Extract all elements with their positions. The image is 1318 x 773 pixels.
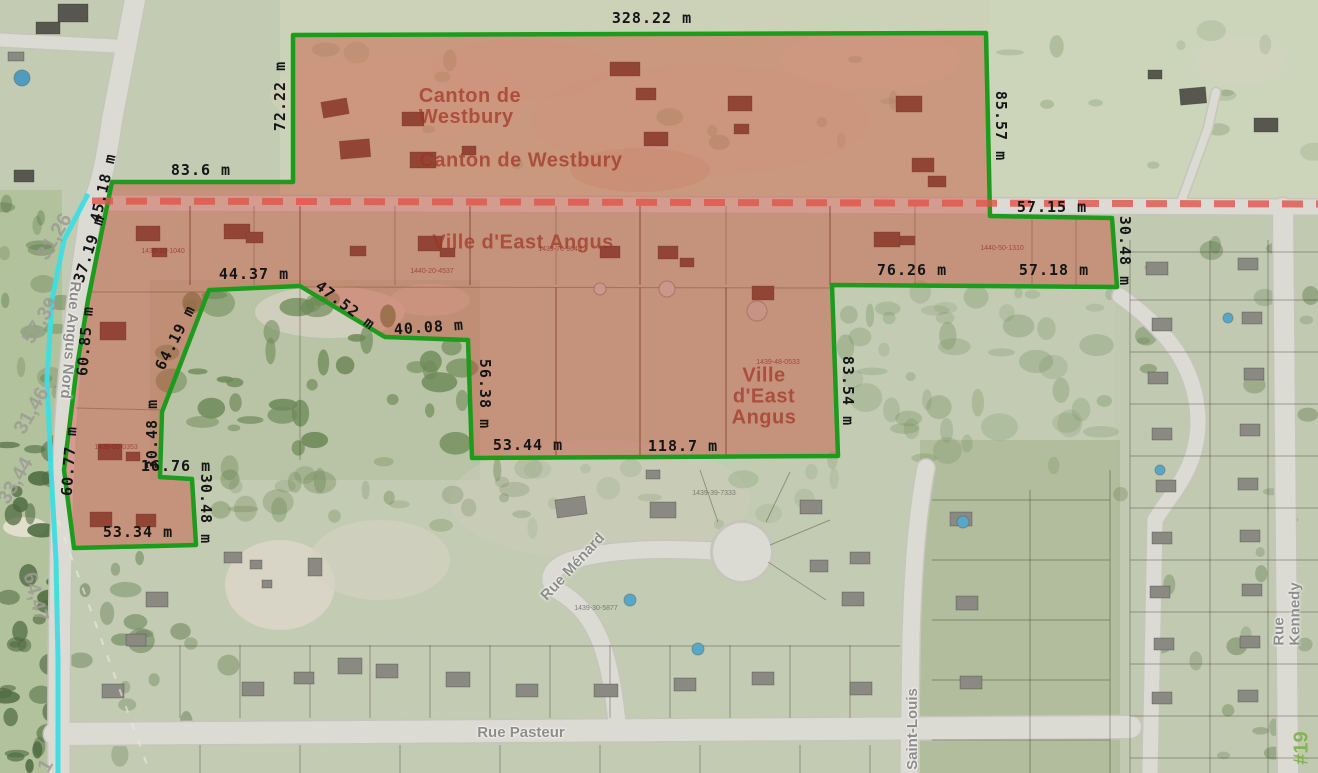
measurement-label: 53.34 m	[103, 525, 173, 541]
lot-frontage-label: 33,44	[0, 454, 38, 508]
measurement-label: 47.52 m	[312, 279, 378, 334]
street-name-label: Rue Kennedy	[1271, 582, 1303, 645]
measurement-label: 40.08 m	[393, 318, 464, 339]
measurement-label: 60.77 m	[60, 425, 81, 496]
parcel-id-label: 1439-30-5877	[574, 605, 618, 613]
route-number-label: #19	[1292, 731, 1313, 764]
measurement-label: 64.19 m	[153, 303, 199, 373]
measurement-label: 118.7 m	[648, 439, 718, 455]
lot-frontage-label: 57,39	[19, 294, 63, 348]
measurement-label: 30.48 m	[197, 474, 213, 544]
map-label-layer: 1439-10-10401439-70-96481440-20-45371440…	[0, 0, 1318, 773]
measurement-label: 83.6 m	[171, 163, 231, 179]
municipality-label: Canton de Westbury	[419, 151, 622, 172]
measurement-label: 44.37 m	[219, 267, 289, 283]
measurement-label: 83.54 m	[839, 356, 855, 426]
parcel-id-label: 1440-20-4537	[410, 268, 454, 276]
measurement-label: 76.26 m	[877, 263, 947, 279]
measurement-label: 60.85 m	[75, 305, 97, 376]
measurement-label: 16.76 m	[141, 459, 211, 475]
parcel-id-label: 1439-10-1040	[141, 248, 185, 256]
lot-frontage-label: 31,46	[10, 384, 53, 438]
street-name-label: Rue Pasteur	[477, 725, 565, 741]
municipality-label: Ville d'East Angus	[432, 233, 614, 254]
parcel-id-label: 1439-39-7333	[692, 490, 736, 498]
municipality-label: Canton de Westbury	[419, 86, 521, 128]
measurement-label: 57.15 m	[1017, 200, 1087, 216]
street-name-label: Rue Ménard	[538, 530, 608, 604]
lot-frontage-label: 31,26	[33, 210, 76, 264]
lot-frontage-label: 64,47	[18, 570, 51, 624]
street-name-label: Saint-Louis	[905, 688, 921, 770]
measurement-label: 328.22 m	[612, 11, 692, 27]
measurement-label: 30.48 m	[1116, 216, 1132, 286]
measurement-label: 37.19 m	[72, 213, 109, 285]
parcel-id-label: 1440-50-1310	[980, 245, 1024, 253]
lot-frontage-label: 1	[34, 756, 58, 773]
measurement-label: 56.38 m	[476, 359, 492, 429]
measurement-label: 85.57 m	[992, 91, 1008, 161]
parcel-id-label: 1439-09-0353	[94, 444, 138, 452]
municipality-label: Ville d'East Angus	[732, 366, 797, 429]
measurement-label: 57.18 m	[1019, 263, 1089, 279]
measurement-label: 53.44 m	[493, 438, 563, 454]
gis-map-canvas[interactable]: 1439-10-10401439-70-96481440-20-45371440…	[0, 0, 1318, 773]
measurement-label: 72.22 m	[273, 61, 289, 131]
